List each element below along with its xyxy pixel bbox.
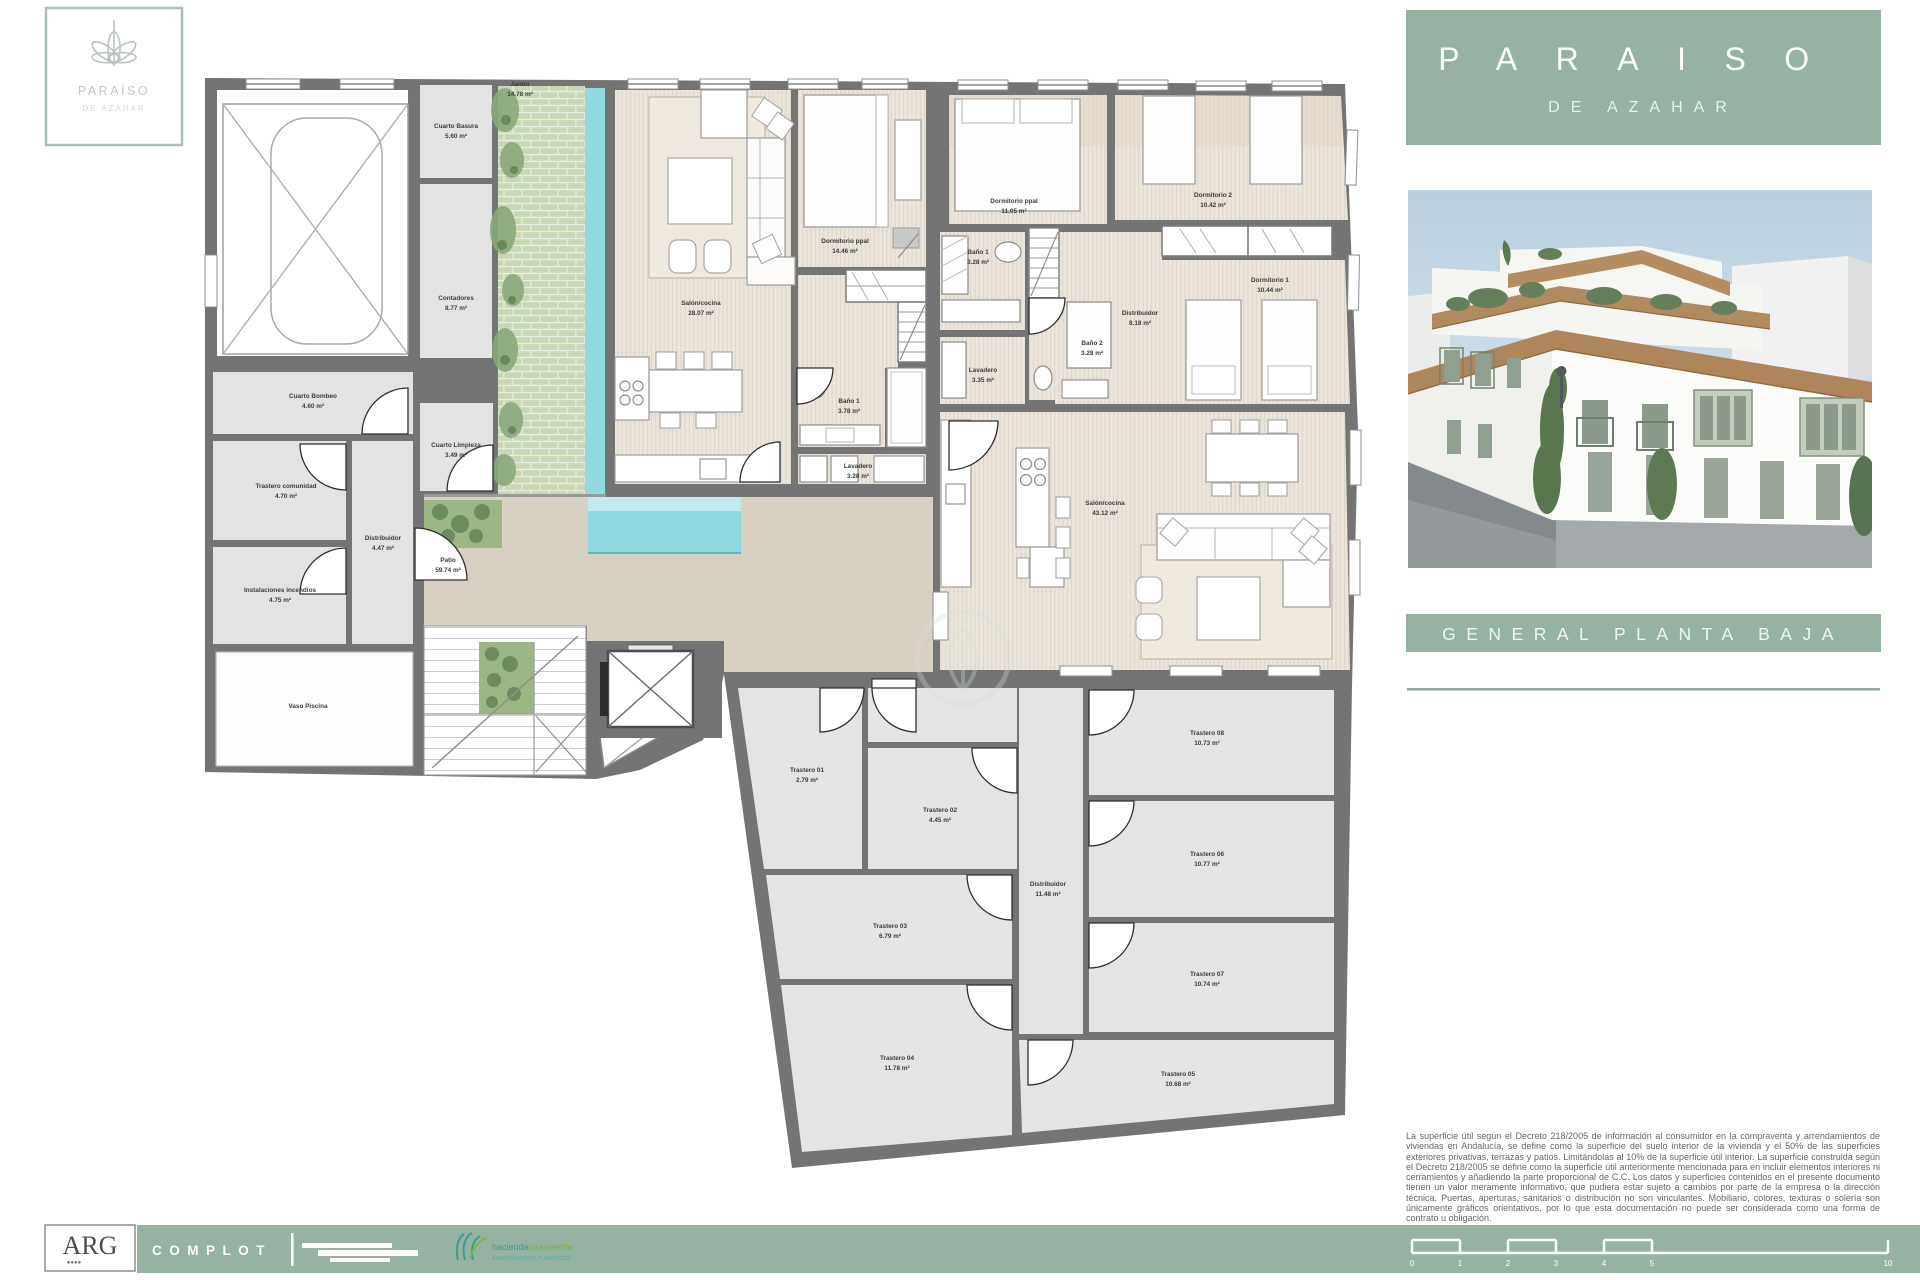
svg-text:5.60 m²: 5.60 m² [445, 133, 467, 140]
svg-text:GENERAL PLANTA BAJA: GENERAL PLANTA BAJA [1442, 624, 1844, 644]
svg-text:Lavadero: Lavadero [969, 367, 998, 374]
svg-text:Dormitorio 2: Dormitorio 2 [1194, 192, 1232, 199]
svg-text:Distribuidor: Distribuidor [365, 535, 402, 542]
svg-text:Trastero 04: Trastero 04 [880, 1055, 915, 1062]
svg-text:3.35 m²: 3.35 m² [972, 377, 994, 384]
svg-text:3.28 m²: 3.28 m² [847, 473, 869, 480]
svg-text:Trastero 01: Trastero 01 [790, 767, 825, 774]
svg-text:1: 1 [1458, 1259, 1463, 1268]
svg-text:ARG: ARG [63, 1231, 118, 1260]
svg-text:Dormitorio ppal: Dormitorio ppal [990, 198, 1038, 205]
svg-text:0: 0 [1410, 1259, 1415, 1268]
svg-text:10.77 m²: 10.77 m² [1194, 861, 1220, 868]
svg-text:4.75 m²: 4.75 m² [269, 597, 291, 604]
svg-text:59.74 m²: 59.74 m² [435, 567, 461, 574]
svg-text:4.47 m²: 4.47 m² [372, 545, 394, 552]
svg-text:Salón/cocina: Salón/cocina [1085, 500, 1125, 507]
svg-text:Trastero 08: Trastero 08 [1190, 730, 1225, 737]
svg-text:Baño 1: Baño 1 [838, 398, 860, 405]
svg-text:Baño 1: Baño 1 [967, 249, 989, 256]
svg-text:Salón/cocina: Salón/cocina [681, 300, 721, 307]
svg-text:3.28 m²: 3.28 m² [1081, 350, 1103, 357]
svg-text:4.45 m²: 4.45 m² [929, 817, 951, 824]
svg-text:2: 2 [1506, 1259, 1511, 1268]
svg-text:Contadores: Contadores [438, 295, 474, 302]
svg-text:haciendacasaverde: haciendacasaverde [492, 1242, 573, 1252]
svg-text:4.70 m²: 4.70 m² [275, 493, 297, 500]
svg-text:11.05 m²: 11.05 m² [1001, 208, 1026, 215]
svg-text:10.73 m²: 10.73 m² [1194, 740, 1220, 747]
svg-text:Distribuidor: Distribuidor [1030, 881, 1067, 888]
svg-text:3.78 m²: 3.78 m² [838, 408, 860, 415]
svg-text:10.42 m²: 10.42 m² [1200, 202, 1226, 209]
svg-text:Trastero 03: Trastero 03 [873, 923, 908, 930]
svg-text:Vaso Piscina: Vaso Piscina [288, 703, 328, 710]
svg-text:Trastero 06: Trastero 06 [1190, 851, 1225, 858]
svg-text:3.49 m²: 3.49 m² [445, 452, 467, 459]
svg-text:11.78 m²: 11.78 m² [884, 1065, 909, 1072]
svg-text:43.12 m²: 43.12 m² [1092, 510, 1118, 517]
svg-text:4: 4 [1602, 1259, 1607, 1268]
svg-text:Trastero comunidad: Trastero comunidad [255, 483, 316, 490]
svg-text:Dormitorio 1: Dormitorio 1 [1251, 277, 1289, 284]
svg-text:Cuarto Bombeo: Cuarto Bombeo [289, 393, 337, 400]
svg-text:14.78 m²: 14.78 m² [507, 91, 533, 98]
svg-text:3: 3 [1554, 1259, 1559, 1268]
svg-text:Cuarto Basura: Cuarto Basura [434, 123, 478, 130]
svg-text:●●●●: ●●●● [67, 1260, 82, 1266]
svg-text:Distribuidor: Distribuidor [1122, 310, 1159, 317]
svg-text:DE AZAHAR: DE AZAHAR [82, 104, 145, 113]
svg-text:Instalaciones incendios: Instalaciones incendios [244, 587, 317, 594]
svg-text:10.44 m²: 10.44 m² [1257, 287, 1283, 294]
svg-text:PARAISO: PARAISO [1438, 41, 1847, 77]
svg-text:8.18 m²: 8.18 m² [1129, 320, 1151, 327]
svg-text:Trastero 07: Trastero 07 [1190, 971, 1225, 978]
svg-text:Lavadero: Lavadero [844, 463, 873, 470]
svg-text:Trastero 02: Trastero 02 [923, 807, 958, 814]
svg-text:Baño 2: Baño 2 [1081, 340, 1103, 347]
svg-text:Trastero 05: Trastero 05 [1161, 1071, 1196, 1078]
svg-text:28.07 m²: 28.07 m² [688, 310, 714, 317]
svg-text:5: 5 [1650, 1259, 1655, 1268]
svg-text:Patio: Patio [440, 557, 456, 564]
svg-text:Dormitorio ppal: Dormitorio ppal [821, 238, 869, 245]
svg-text:8.77 m²: 8.77 m² [445, 305, 467, 312]
svg-text:14.46 m²: 14.46 m² [832, 248, 858, 255]
svg-text:Cuarto Limpieza: Cuarto Limpieza [431, 442, 481, 449]
svg-text:APARTAMENTOS TURÍSTICOS: APARTAMENTOS TURÍSTICOS [492, 1255, 572, 1262]
svg-text:Jardín: Jardín [510, 81, 529, 88]
svg-text:11.48 m²: 11.48 m² [1035, 891, 1060, 898]
svg-text:PARAÍSO: PARAÍSO [78, 83, 150, 98]
svg-text:DE AZAHAR: DE AZAHAR [1548, 99, 1738, 116]
svg-text:COMPLOT: COMPLOT [152, 1243, 272, 1258]
svg-text:3.28 m²: 3.28 m² [967, 259, 989, 266]
svg-text:10.68 m²: 10.68 m² [1165, 1081, 1191, 1088]
svg-text:4.60 m²: 4.60 m² [302, 403, 324, 410]
svg-text:2.79 m²: 2.79 m² [796, 777, 818, 784]
svg-text:10: 10 [1884, 1259, 1893, 1268]
svg-text:10.74 m²: 10.74 m² [1194, 981, 1220, 988]
svg-text:6.79 m²: 6.79 m² [879, 933, 901, 940]
